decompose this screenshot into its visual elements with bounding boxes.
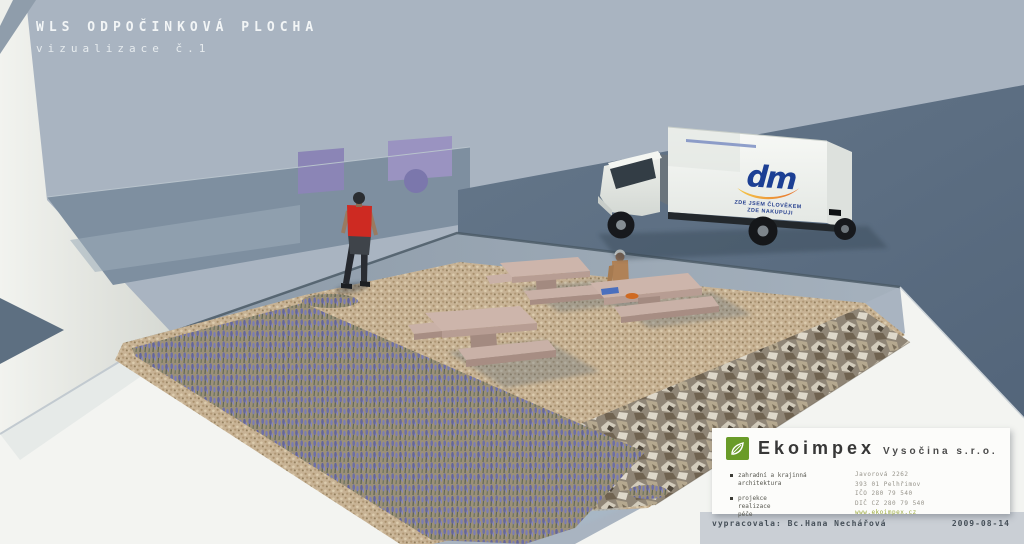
- bullet-icon: [730, 474, 733, 477]
- purple-panel-1: [298, 148, 344, 194]
- title-line2: vizualizace č.1: [36, 42, 318, 55]
- date-stamp: 2009-08-14: [952, 519, 1010, 528]
- contact-block: Javorová 2262 393 01 Pelhřimov IČO 280 7…: [855, 470, 925, 518]
- service2-line3: péče: [738, 511, 771, 519]
- service2-line1: projekce: [738, 495, 771, 503]
- brand-row: Ekoimpex Vysočina s.r.o.: [726, 437, 998, 460]
- dm-logo-text: dm: [745, 159, 797, 197]
- company-info-panel: Ekoimpex Vysočina s.r.o. zahradní a kraj…: [712, 428, 1010, 514]
- credits-row: vypracovala: Bc.Hana Nechářová 2009-08-1…: [712, 519, 1010, 528]
- visualization-board: dm ZDE JSEM ČLOVĚKEM ZDE NAKUPUJI: [0, 0, 1024, 544]
- service2-line2: realizace: [738, 503, 771, 511]
- bullet-icon: [730, 497, 733, 500]
- contact-dic: DIČ CZ 280 79 540: [855, 499, 925, 509]
- service-item-2: projekce realizace péče: [730, 495, 807, 519]
- title-block: WLS ODPOČINKOVÁ PLOCHA vizualizace č.1: [36, 20, 318, 55]
- company-name: Ekoimpex: [758, 438, 875, 459]
- person-head: [353, 192, 365, 204]
- red-shirt: [347, 205, 372, 237]
- leaf-logo-icon: [726, 437, 749, 460]
- service1-line2: architektura: [738, 480, 807, 488]
- company-website: www.ekoimpex.cz: [855, 508, 925, 518]
- services-list: zahradní a krajinná architektura projekc…: [730, 472, 807, 526]
- service-item-1: zahradní a krajinná architektura: [730, 472, 807, 488]
- orange-dish: [626, 293, 639, 299]
- contact-city: 393 01 Pelhřimov: [855, 480, 925, 490]
- contact-street: Javorová 2262: [855, 470, 925, 480]
- contact-ico: IČO 280 79 540: [855, 489, 925, 499]
- title-line1: WLS ODPOČINKOVÁ PLOCHA: [36, 20, 318, 35]
- purple-circle: [404, 169, 428, 193]
- author-credit: vypracovala: Bc.Hana Nechářová: [712, 519, 887, 528]
- company-suffix: Vysočina s.r.o.: [883, 446, 998, 457]
- service1-line1: zahradní a krajinná: [738, 472, 807, 480]
